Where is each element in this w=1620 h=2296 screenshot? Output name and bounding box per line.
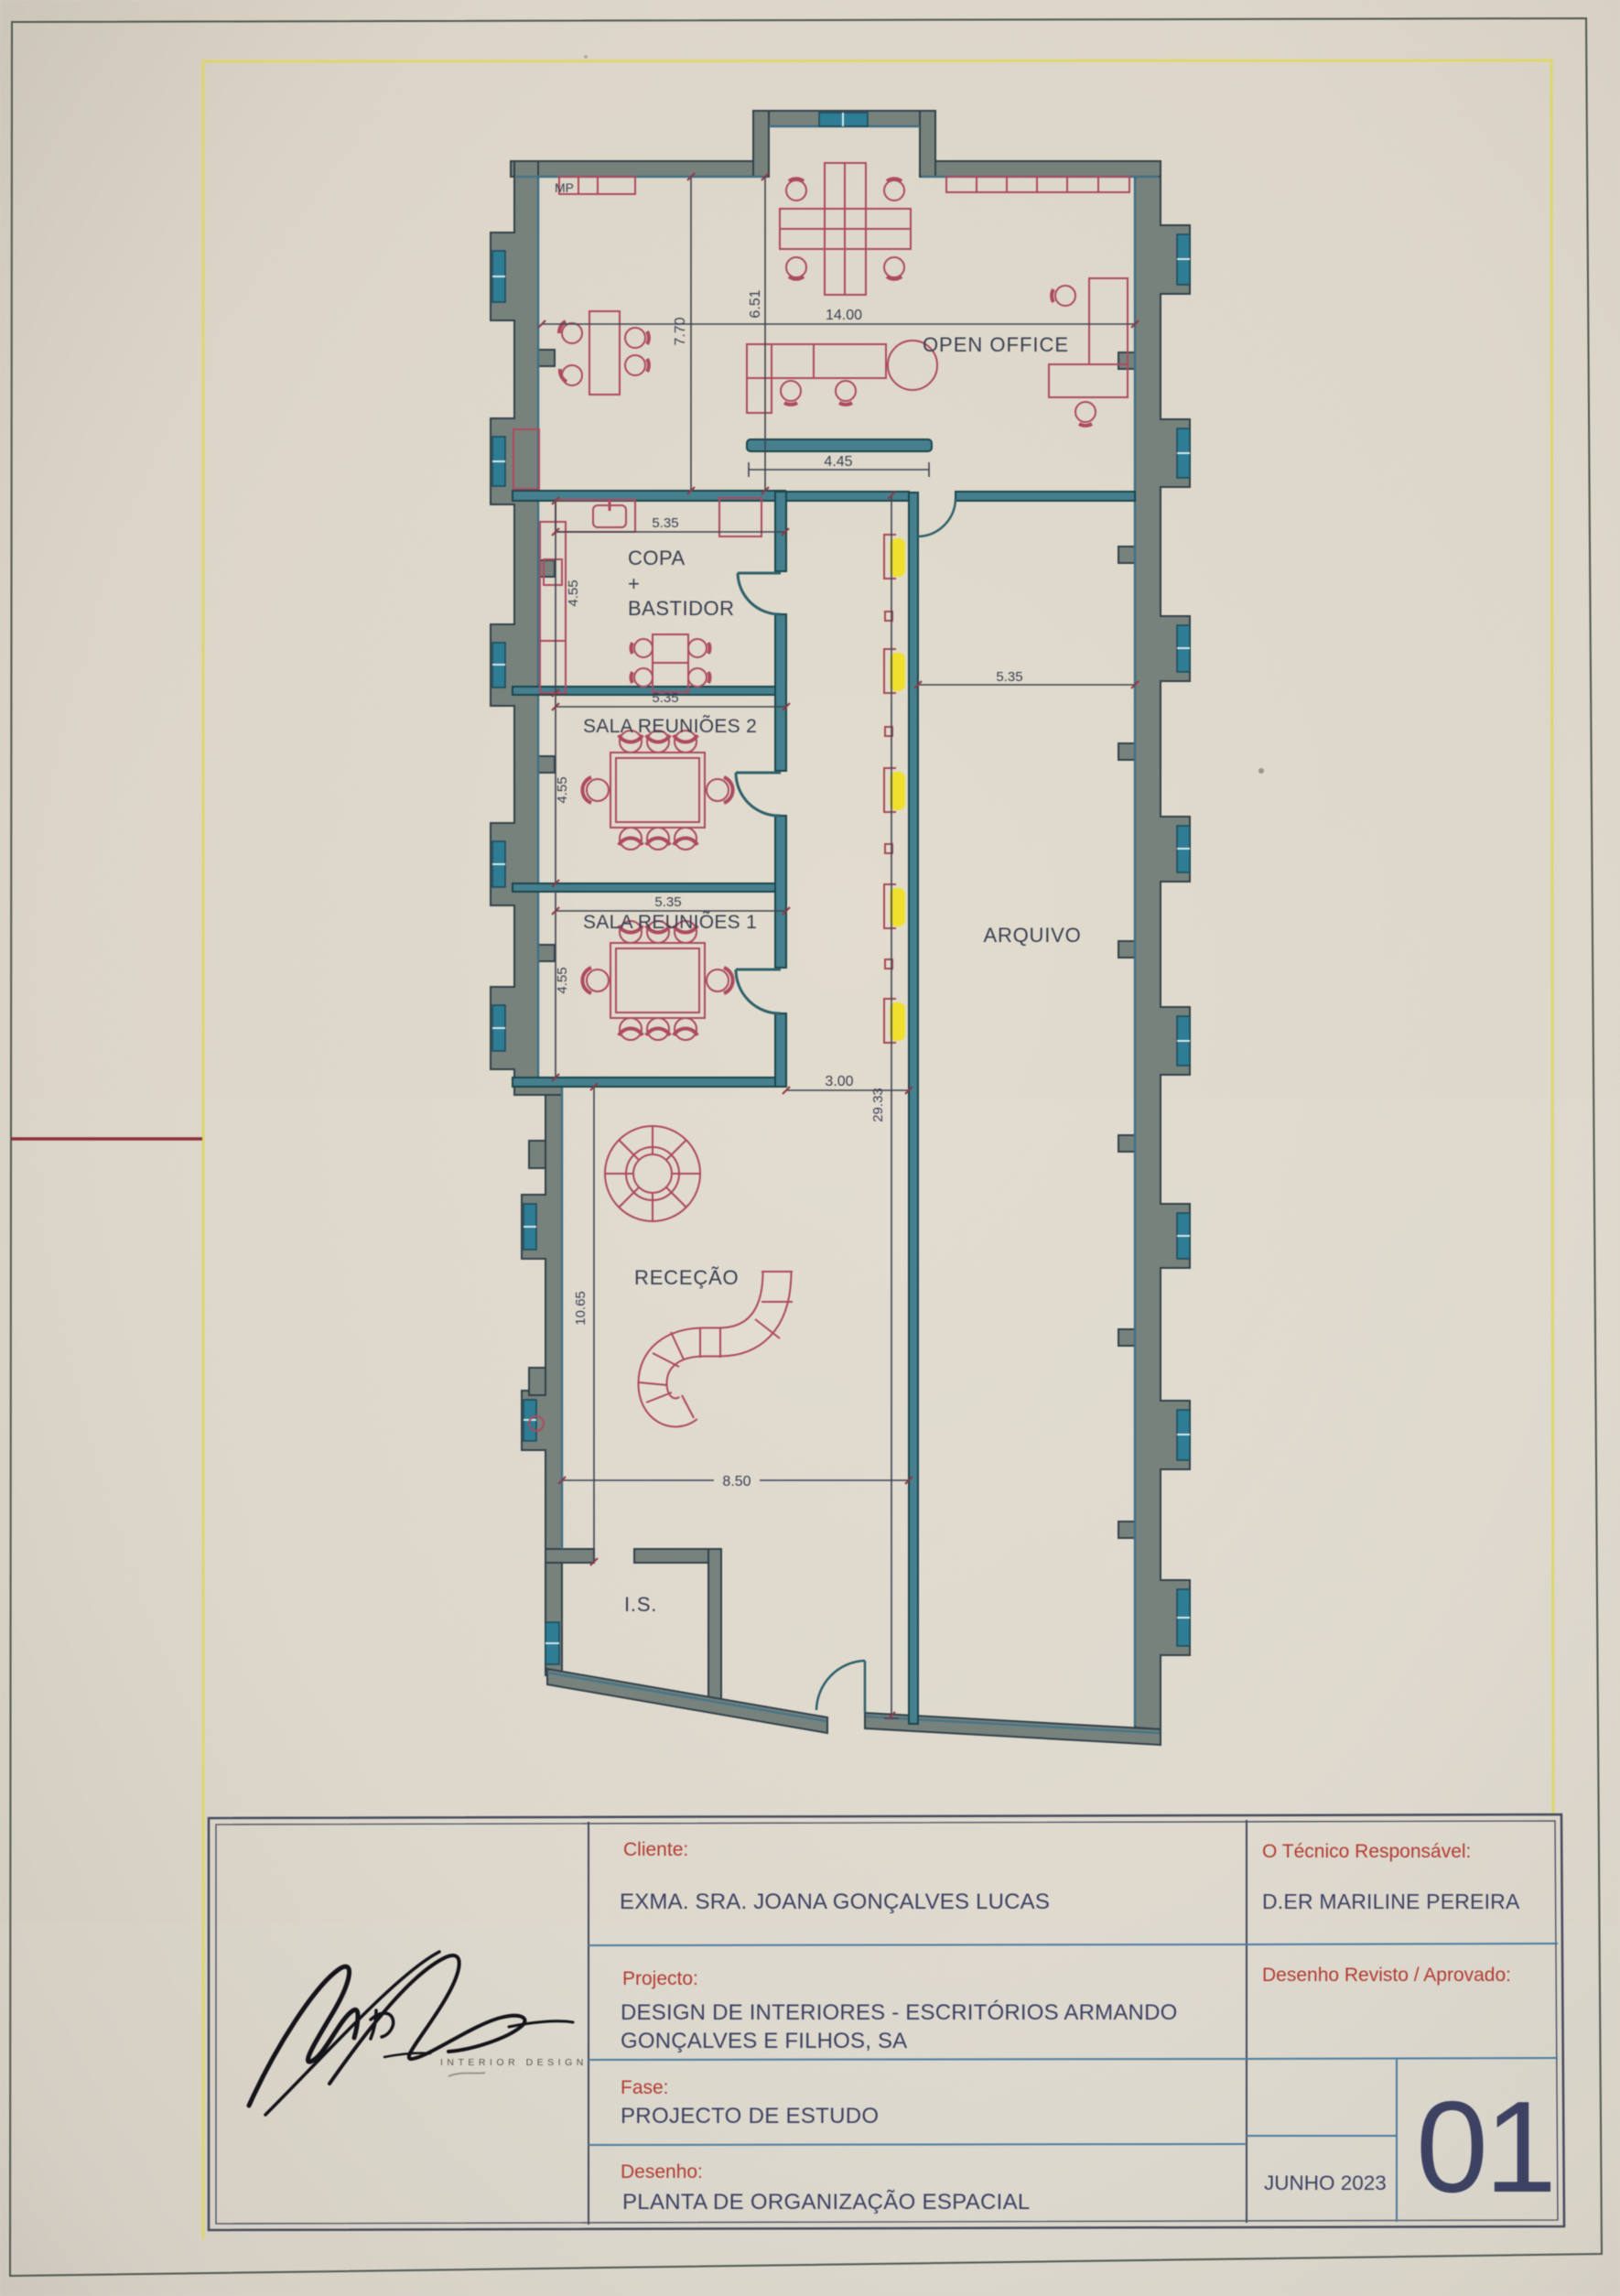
svg-text:Projecto:: Projecto: — [622, 1968, 698, 1989]
svg-text:4.55: 4.55 — [555, 967, 570, 993]
svg-text:8.50: 8.50 — [722, 1474, 751, 1489]
svg-text:DESIGN DE INTERIORES - ESCRITÓ: DESIGN DE INTERIORES - ESCRITÓRIOS ARMAN… — [621, 2000, 1177, 2025]
svg-text:Fase:: Fase: — [621, 2077, 669, 2098]
svg-text:5.35: 5.35 — [652, 690, 678, 706]
svg-text:MP: MP — [555, 180, 574, 195]
svg-text:10.65: 10.65 — [573, 1291, 589, 1326]
svg-text:OPEN OFFICE: OPEN OFFICE — [923, 333, 1069, 356]
svg-text:Desenho Revisto / Aprovado:: Desenho Revisto / Aprovado: — [1262, 1965, 1511, 1986]
svg-text:BASTIDOR: BASTIDOR — [628, 597, 734, 620]
svg-text:JUNHO 2023: JUNHO 2023 — [1264, 2171, 1387, 2194]
svg-text:14.00: 14.00 — [826, 308, 862, 323]
svg-text:SALA REUNIÕES 1: SALA REUNIÕES 1 — [583, 911, 757, 933]
svg-text:5.35: 5.35 — [654, 894, 681, 910]
svg-text:D.ER MARILINE PEREIRA: D.ER MARILINE PEREIRA — [1262, 1890, 1520, 1913]
svg-text:ARQUIVO: ARQUIVO — [983, 924, 1081, 947]
svg-text:Desenho:: Desenho: — [621, 2161, 703, 2182]
svg-text:Cliente:: Cliente: — [623, 1839, 688, 1860]
svg-text:4.45: 4.45 — [824, 454, 852, 470]
svg-text:6.51: 6.51 — [748, 289, 763, 318]
svg-text:5.35: 5.35 — [996, 669, 1022, 685]
svg-text:RECEÇÃO: RECEÇÃO — [634, 1266, 739, 1289]
svg-text:5.35: 5.35 — [652, 515, 678, 531]
svg-text:3.00: 3.00 — [825, 1074, 853, 1089]
svg-text:INTERIOR DESIGN: INTERIOR DESIGN — [440, 2057, 588, 2068]
svg-text:7.70: 7.70 — [673, 317, 688, 345]
svg-text:I.S.: I.S. — [624, 1593, 657, 1616]
svg-text:+: + — [628, 572, 640, 595]
svg-text:GONÇALVES E FILHOS, SA: GONÇALVES E FILHOS, SA — [621, 2029, 907, 2053]
svg-text:4.55: 4.55 — [555, 776, 570, 803]
svg-text:29.33: 29.33 — [870, 1088, 886, 1122]
svg-text:4.55: 4.55 — [566, 579, 581, 606]
svg-text:PLANTA DE ORGANIZAÇÃO ESPACIAL: PLANTA DE ORGANIZAÇÃO ESPACIAL — [622, 2190, 1031, 2215]
svg-text:EXMA. SRA. JOANA GONÇALVES LUC: EXMA. SRA. JOANA GONÇALVES LUCAS — [620, 1890, 1050, 1914]
svg-text:PROJECTO DE ESTUDO: PROJECTO DE ESTUDO — [621, 2104, 879, 2128]
svg-text:01: 01 — [1416, 2074, 1553, 2220]
svg-text:COPA: COPA — [628, 547, 686, 569]
svg-text:SALA REUNIÕES 2: SALA REUNIÕES 2 — [583, 715, 757, 737]
svg-text:O Técnico Responsável:: O Técnico Responsável: — [1262, 1841, 1471, 1862]
